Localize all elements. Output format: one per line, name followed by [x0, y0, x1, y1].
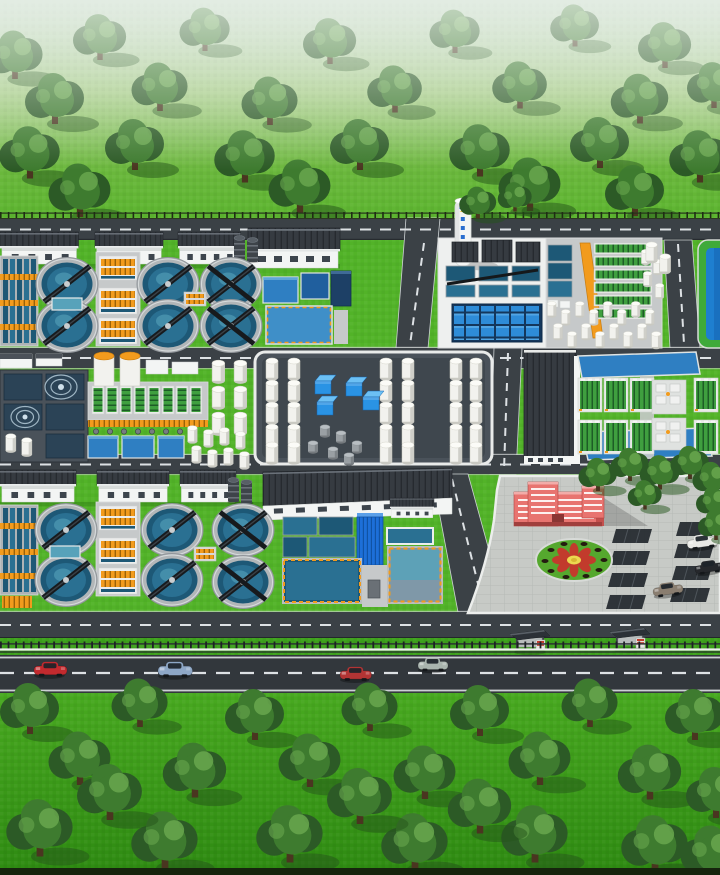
tk-instance: [631, 301, 640, 317]
workshop-south-1: [0, 470, 76, 502]
rendered-scene: Wastewater treatment plant campus — aeri…: [0, 0, 720, 875]
clar-instance: [35, 554, 97, 607]
tk-instance: [234, 386, 247, 410]
rooftop-units: [452, 240, 540, 262]
contact-pools: [88, 436, 184, 458]
tk-instance: [554, 324, 563, 341]
stall-instance: [610, 551, 650, 565]
tk-instance: [212, 360, 225, 384]
tk-instance: [470, 358, 482, 381]
drum-instance: [308, 441, 318, 454]
rackBig-instance: [630, 420, 654, 454]
horizon-haze: [0, 0, 720, 170]
tk-instance: [470, 402, 482, 425]
tk-instance: [547, 301, 556, 317]
chemical-building-navy: [331, 271, 351, 306]
rackV-instance: [190, 386, 202, 414]
tk-instance: [643, 271, 651, 287]
rackV-instance: [162, 386, 174, 414]
tk-instance: [288, 442, 300, 465]
clarifier-connector-north: [52, 298, 82, 310]
dosing-units-south: [96, 502, 140, 596]
rackBig-instance: [694, 378, 718, 412]
flower-roundel: [536, 539, 612, 581]
tk-instance: [204, 430, 214, 448]
tk-instance: [208, 450, 218, 468]
outfall-pool-green: [698, 240, 720, 348]
tank-farm: [255, 352, 492, 466]
clar-instance: [137, 300, 199, 353]
tk-instance: [220, 428, 230, 446]
tk-instance: [603, 301, 612, 317]
tk-instance: [450, 358, 462, 381]
drum-instance: [328, 447, 338, 460]
bottom-edge: [0, 868, 720, 875]
stall-instance: [608, 573, 648, 587]
tk-instance: [450, 402, 462, 425]
tk-instance: [652, 332, 661, 350]
tk-instance: [266, 380, 278, 403]
drum-instance: [344, 453, 354, 466]
rackBig-instance: [694, 420, 718, 454]
tk-instance: [380, 402, 392, 425]
tk-instance: [236, 432, 246, 450]
tk-instance: [288, 402, 300, 425]
sludge-rack-orange: [2, 596, 32, 608]
workshop-south-3: [180, 470, 236, 502]
tk-instance: [288, 380, 300, 403]
tk-instance: [266, 358, 278, 381]
rackBig-instance: [630, 378, 654, 412]
tk-instance: [402, 442, 414, 465]
clarX-instance: [212, 504, 274, 557]
filter-house-south: [390, 498, 434, 518]
tk-instance: [450, 380, 462, 403]
treatment-plant-aerial-render: Wastewater treatment plant campus — aeri…: [0, 0, 720, 875]
tk-instance: [596, 332, 605, 349]
rackBig-instance: [578, 378, 602, 412]
tk-instance: [638, 324, 647, 341]
tk-instance: [470, 442, 482, 465]
clarX-instance: [212, 556, 274, 609]
mini-dosing-south: [194, 547, 216, 561]
clar-instance: [141, 504, 203, 557]
aeration-channels-north: [0, 256, 38, 346]
mid-process-block: [0, 350, 718, 470]
rackV-instance: [134, 386, 146, 414]
tk-instance: [645, 309, 654, 325]
drum-instance: [336, 431, 346, 444]
dosing-units-north: [96, 252, 140, 346]
tk-instance: [234, 360, 247, 384]
membrane-basin-north: [578, 352, 700, 378]
tk-instance: [22, 438, 32, 457]
rackV-instance: [106, 386, 118, 414]
warehouse-north: [248, 228, 340, 268]
rackV-instance: [92, 386, 104, 414]
workshop-south-2: [97, 470, 169, 502]
rackV-instance: [176, 386, 188, 414]
clarifier-connector-south: [50, 546, 80, 558]
north-greenbelt: [0, 0, 720, 232]
tk-instance: [582, 324, 591, 341]
stall-instance: [606, 595, 646, 609]
tk-instance: [646, 242, 657, 263]
stall-instance: [612, 529, 652, 543]
drum-instance: [320, 425, 330, 438]
tk-instance: [266, 402, 278, 425]
tk-instance: [610, 324, 619, 341]
tk-instance: [402, 380, 414, 403]
rackBig-instance: [604, 378, 628, 412]
south-greenbelt: [0, 679, 720, 875]
bioRow-instance: [594, 295, 652, 306]
drum-instance: [352, 441, 362, 454]
tk-instance: [380, 442, 392, 465]
blue-cell-basin: [452, 304, 542, 342]
tk-instance: [655, 283, 663, 299]
tk-instance: [224, 448, 234, 466]
tk-instance: [266, 442, 278, 465]
tk-instance: [589, 309, 598, 325]
mini-dosing-north: [184, 292, 206, 306]
tk-instance: [380, 358, 392, 381]
tk-instance: [617, 309, 626, 325]
tk-instance: [470, 380, 482, 403]
storage-pool-2: [388, 547, 442, 603]
tk-instance: [188, 426, 198, 444]
tk-instance: [6, 434, 16, 453]
tk-instance: [402, 402, 414, 425]
rackBig-instance: [578, 420, 602, 454]
tk-instance: [575, 301, 584, 317]
busShelter-instance: [510, 630, 550, 655]
tk-instance: [568, 332, 577, 349]
rackV-instance: [148, 386, 160, 414]
aeration-channels-south: [0, 505, 38, 595]
tk-instance: [660, 254, 671, 274]
tk-instance: [561, 309, 570, 325]
clarX-instance: [200, 300, 262, 353]
tk-instance: [624, 332, 633, 349]
tk-instance: [192, 446, 202, 464]
tk-instance: [212, 386, 225, 410]
blue-shed: [357, 513, 383, 565]
tk-instance: [402, 358, 414, 381]
rackV-instance: [120, 386, 132, 414]
tk-instance: [240, 452, 250, 470]
tk-instance: [450, 442, 462, 465]
membrane-building-roof: [524, 350, 576, 462]
clar-instance: [141, 554, 203, 607]
storage-pool-1: [283, 559, 361, 603]
lift-tower: [368, 580, 380, 598]
tk-instance: [288, 358, 300, 381]
